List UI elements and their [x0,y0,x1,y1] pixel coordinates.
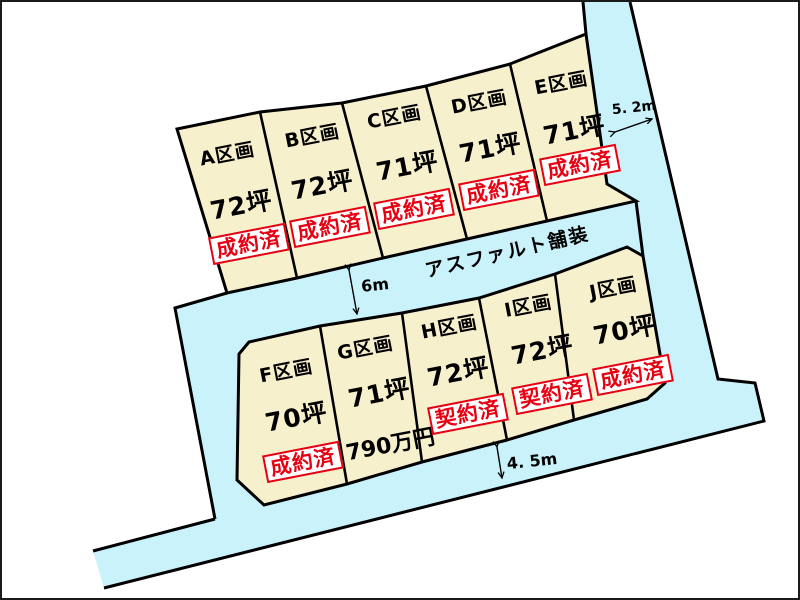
plot-map-canvas [2,2,798,598]
land-plot-map: A区画 72坪 成約済 B区画 72坪 成約済 C区画 71坪 成約済 D区画 … [0,0,800,600]
middle-road-width-label: 6m [360,274,390,296]
